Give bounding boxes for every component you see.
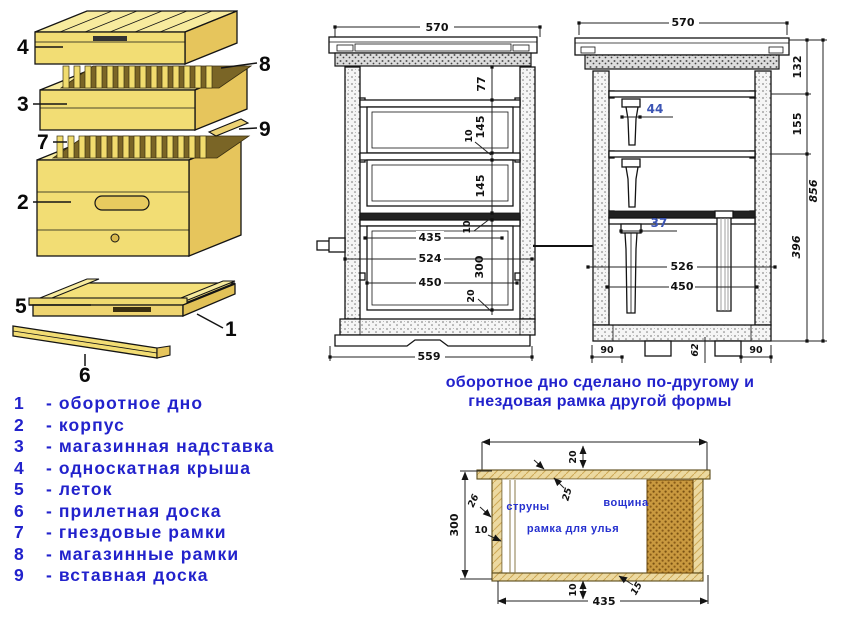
foot-right [715,341,741,356]
frame-right-bar [693,479,703,573]
caption-line2: гнездовая рамка другой формы [400,392,800,411]
legend-label: - оборотное дно [46,393,203,414]
legend-number: 9 [14,565,46,586]
front-right-wall [520,67,535,319]
magazine-frames [61,66,251,88]
side-dim-396: 396 [790,235,803,258]
callout-9: 9 [259,118,271,141]
side-dim-450: 450 [671,280,694,293]
side-dim-90l: 90 [600,345,614,356]
side-dim-62: 62 [690,343,701,357]
foundation-sheet [647,480,693,573]
front-dim-524: 524 [419,252,442,265]
landing-board [13,326,170,358]
handle-recess [95,196,149,210]
side-dim-155: 155 [791,113,804,136]
frame-left-bar [492,479,502,573]
hive-frame-view: струны вощина рамка для улья 20 25 26 30… [430,418,730,616]
legend-item-7: 7- гнездовые рамки [14,522,274,544]
side-floor [593,325,771,341]
front-dim-450: 450 [419,276,442,289]
legend-item-4: 4- односкатная крыша [14,458,274,480]
legend-item-3: 3- магазинная надставка [14,436,274,458]
front-dim-145b: 145 [474,175,487,198]
side-dim-37: 37 [651,216,668,230]
side-dim-44: 44 [647,102,664,116]
divider-board-profile [715,211,733,311]
legend-number: 7 [14,522,46,543]
callout-2: 2 [17,191,29,214]
frame-dim-10-wire: 10 [474,525,488,536]
side-dim-570: 570 [672,16,695,29]
label-wires: струны [506,501,549,513]
front-dim-559: 559 [418,350,441,363]
legend-item-2: 2- корпус [14,415,274,437]
front-dim-435: 435 [419,231,442,244]
legend-item-8: 8- магазинные рамки [14,544,274,566]
legend-number: 4 [14,458,46,479]
frame-dim-10-bottom: 10 [568,583,579,597]
frame-profile-upper [622,99,640,145]
label-frame-title: рамка для улья [527,523,619,535]
frame-dim-20: 20 [568,450,579,464]
vent-hole [111,234,119,242]
legend-item-5: 5- леток [14,479,274,501]
legend-number: 6 [14,501,46,522]
front-dim-10b: 10 [462,220,473,234]
front-floor [340,319,535,335]
front-dim-10a: 10 [464,129,475,143]
entrance-slot [113,307,151,312]
frame-dim-15: 15 [629,580,645,597]
front-left-wall [345,67,360,319]
caption-line1: оборотное дно сделано по-другому и [400,373,800,392]
label-foundation: вощина [603,497,649,509]
legend-label: - прилетная доска [46,501,222,522]
roof-vent-slot [93,36,127,41]
frame-dim-435: 435 [593,595,616,608]
frame-profile-middle [622,159,640,207]
side-dim-132: 132 [791,56,804,79]
bottom-board [29,279,235,316]
legend-number: 8 [14,544,46,565]
legend-number: 2 [14,415,46,436]
callout-1: 1 [225,318,237,341]
callout-5: 5 [15,295,27,318]
side-section-view: 570 44 37 [565,5,850,367]
exploded-view: 4 3 7 2 5 6 1 8 9 [5,2,310,390]
legend-label: - вставная доска [46,565,209,586]
side-dim-90r: 90 [749,345,763,356]
legend-item-9: 9- вставная доска [14,565,274,587]
front-dim-20: 20 [466,289,477,303]
frame-dim-300: 300 [448,513,461,536]
side-dim-856: 856 [807,179,820,202]
beehive-diagram-page: 4 3 7 2 5 6 1 8 9 570 [0,0,850,618]
legend-item-1: 1- оборотное дно [14,393,274,415]
legend-label: - односкатная крыша [46,458,251,479]
legend-label: - леток [46,479,113,500]
frame-top-bar [477,470,710,479]
front-dim-145a: 145 [474,116,487,139]
legend-label: - магазинная надставка [46,436,274,457]
legend-number: 1 [14,393,46,414]
legend-label: - магазинные рамки [46,544,239,565]
legend-item-6: 6- прилетная доска [14,501,274,523]
legend: 1- оборотное дно 2- корпус 3- магазинная… [14,393,274,587]
callout-3: 3 [17,93,29,116]
legend-label: - корпус [46,415,125,436]
foot-left [645,341,671,356]
front-section-view: 570 77 145 145 300 20 [315,5,550,367]
front-dim-570: 570 [426,21,449,34]
callout-4: 4 [17,36,29,59]
frame-profile-lower [621,224,641,313]
frame-bottom-bar [492,573,703,581]
legend-number: 5 [14,479,46,500]
callout-8: 8 [259,53,271,76]
frame-dim-26: 26 [466,492,482,509]
legend-number: 3 [14,436,46,457]
callout-7: 7 [37,131,49,154]
front-dim-77: 77 [475,76,488,91]
legend-label: - гнездовые рамки [46,522,227,543]
nest-frames [53,136,249,158]
side-dim-526: 526 [671,260,694,273]
roof [35,11,237,64]
caption: оборотное дно сделано по-другому и гнезд… [400,373,800,411]
callout-6: 6 [79,364,91,387]
